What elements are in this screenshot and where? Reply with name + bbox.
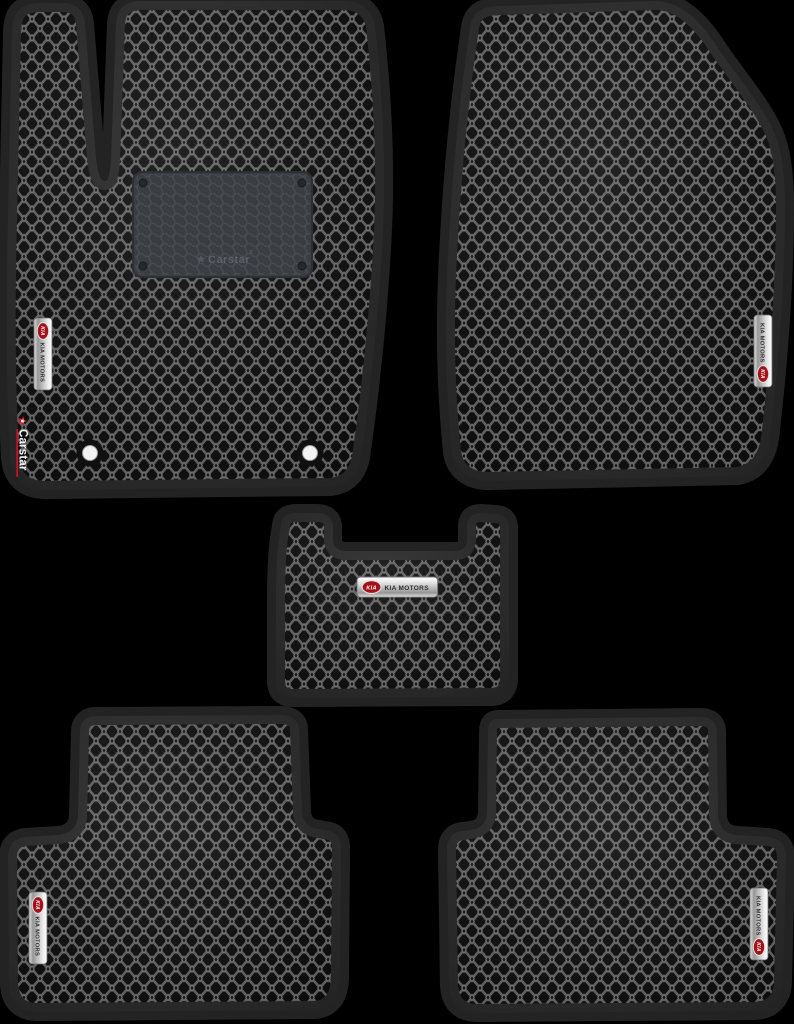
carstar-star-inner-icon: ★ <box>18 418 25 424</box>
heel-pad: ★ Carstar ® <box>133 172 312 277</box>
kia-motors-badge: KIA KIA MOTORS <box>29 892 47 964</box>
heel-pad-rivet <box>298 179 306 187</box>
product-photo-floor-mat-set: ★ Carstar ® KIA KIA MOTORS ★ ★ Carstar <box>0 0 794 1024</box>
floor-mats-scene: ★ Carstar ® KIA KIA MOTORS ★ ★ Carstar <box>0 0 794 1024</box>
kia-motors-label: KIA MOTORS <box>39 343 45 383</box>
registered-mark: ® <box>249 249 253 256</box>
kia-motors-badge: KIA KIA MOTORS <box>357 577 438 597</box>
heel-pad-rivet <box>139 262 147 270</box>
front-left-driver-mat: ★ Carstar ® KIA KIA MOTORS ★ ★ Carstar <box>7 1 384 490</box>
heel-pad-rivet <box>139 179 147 187</box>
fastener-hole <box>297 440 324 467</box>
carstar-corner-tag: ★ ★ Carstar <box>15 415 30 477</box>
kia-motors-badge: KIA KIA MOTORS <box>34 318 52 390</box>
heel-pad-rivet <box>298 262 306 270</box>
kia-logo-text: KIA <box>755 942 761 952</box>
carstar-tag-underline <box>16 429 18 477</box>
kia-motors-label: KIA MOTORS <box>759 323 765 363</box>
kia-motors-badge: KIA KIA MOTORS <box>754 315 772 387</box>
kia-logo-text: KIA <box>759 369 765 379</box>
kia-motors-badge: KIA KIA MOTORS <box>750 888 768 960</box>
carstar-tag-text: Carstar <box>16 429 28 471</box>
kia-motors-label: KIA MOTORS <box>755 896 761 936</box>
kia-logo-text: KIA <box>34 900 40 910</box>
kia-logo-text: KIA <box>366 586 377 592</box>
front-right-mat-lighting <box>446 1 785 481</box>
fastener-hole <box>77 440 104 467</box>
kia-logo-text: KIA <box>39 326 45 336</box>
heel-pad-brand-text: Carstar <box>208 254 250 266</box>
kia-motors-label: KIA MOTORS <box>384 585 429 592</box>
fastener-hole-center <box>83 446 98 461</box>
fastener-hole-center <box>303 446 318 461</box>
kia-motors-label: KIA MOTORS <box>34 917 40 957</box>
front-right-passenger-mat: KIA KIA MOTORS <box>446 1 785 481</box>
carstar-star-icon: ★ <box>196 252 207 266</box>
